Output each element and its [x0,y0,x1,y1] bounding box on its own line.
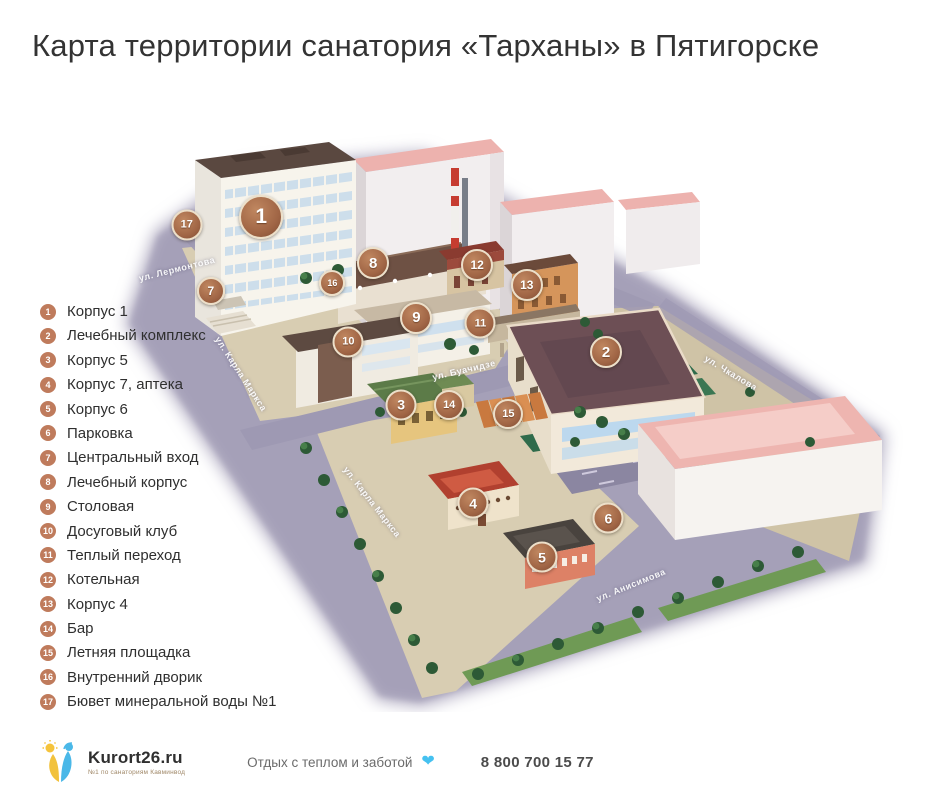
legend-item-2: 2Лечебный комплекс [40,327,276,344]
legend-item-13: 13Корпус 4 [40,596,276,613]
legend-item-10: 10Досуговый клуб [40,523,276,540]
legend-badge: 1 [40,304,56,320]
map-marker-1: 1 [239,195,283,239]
map-marker-13: 13 [511,269,543,301]
legend-label: Бар [67,620,94,637]
legend-badge: 2 [40,328,56,344]
legend-label: Летняя площадка [67,644,190,661]
legend: 1Корпус 12Лечебный комплекс3Корпус 54Кор… [40,303,276,718]
legend-item-11: 11Теплый переход [40,547,276,564]
map-marker-14: 14 [434,390,464,420]
legend-badge: 14 [40,621,56,637]
tagline-text: Отдых с теплом и заботой [247,755,412,770]
map-marker-4: 4 [458,488,489,519]
legend-badge: 13 [40,596,56,612]
brand-subtitle: №1 по санаториям Кавминвод [88,769,185,776]
kurort26-logo[interactable]: Kurort26.ru №1 по санаториям Кавминвод [40,740,185,784]
legend-badge: 7 [40,450,56,466]
legend-item-3: 3Корпус 5 [40,352,276,369]
legend-badge: 9 [40,499,56,515]
map-marker-12: 12 [461,249,493,281]
footer: Kurort26.ru №1 по санаториям Кавминвод О… [40,740,594,784]
map-marker-9: 9 [400,302,432,334]
legend-label: Корпус 6 [67,401,128,418]
map-marker-16: 16 [319,270,345,296]
legend-badge: 8 [40,474,56,490]
legend-item-17: 17Бювет минеральной воды №1 [40,693,276,710]
legend-badge: 4 [40,377,56,393]
legend-label: Корпус 5 [67,352,128,369]
legend-item-6: 6Парковка [40,425,276,442]
legend-item-12: 12Котельная [40,571,276,588]
legend-item-14: 14Бар [40,620,276,637]
map-marker-15: 15 [493,399,523,429]
map-marker-3: 3 [386,389,417,420]
legend-badge: 10 [40,523,56,539]
legend-item-8: 8Лечебный корпус [40,474,276,491]
map-marker-6: 6 [593,503,624,534]
legend-label: Бювет минеральной воды №1 [67,693,276,710]
legend-badge: 5 [40,401,56,417]
legend-label: Корпус 4 [67,596,128,613]
map-marker-11: 11 [465,308,496,339]
legend-item-5: 5Корпус 6 [40,401,276,418]
map-marker-8: 8 [357,247,389,279]
legend-badge: 17 [40,694,56,710]
legend-label: Досуговый клуб [67,523,177,540]
legend-badge: 12 [40,572,56,588]
legend-label: Центральный вход [67,449,199,466]
legend-label: Лечебный корпус [67,474,187,491]
legend-label: Теплый переход [67,547,181,564]
legend-label: Котельная [67,571,140,588]
legend-item-9: 9Столовая [40,498,276,515]
page-title: Карта территории санатория «Тарханы» в П… [32,28,912,64]
map-marker-10: 10 [333,326,364,357]
legend-badge: 3 [40,352,56,368]
map-marker-17: 17 [171,209,202,240]
legend-label: Лечебный комплекс [67,327,206,344]
legend-badge: 16 [40,669,56,685]
legend-badge: 6 [40,425,56,441]
legend-label: Корпус 7, аптека [67,376,183,393]
map-marker-2: 2 [590,336,622,368]
brand-name: Kurort26.ru [88,748,185,768]
legend-item-7: 7Центральный вход [40,449,276,466]
legend-label: Столовая [67,498,134,515]
phone-number[interactable]: 8 800 700 15 77 [481,754,594,771]
legend-badge: 11 [40,547,56,563]
kurort26-logo-icon [40,740,80,784]
legend-badge: 15 [40,645,56,661]
legend-item-1: 1Корпус 1 [40,303,276,320]
map-marker-7: 7 [197,277,225,305]
legend-label: Парковка [67,425,133,442]
legend-label: Корпус 1 [67,303,128,320]
legend-item-15: 15Летняя площадка [40,644,276,661]
logo-text: Kurort26.ru №1 по санаториям Кавминвод [88,748,185,776]
legend-label: Внутренний дворик [67,669,202,686]
legend-item-4: 4Корпус 7, аптека [40,376,276,393]
legend-item-16: 16Внутренний дворик [40,669,276,686]
map-marker-5: 5 [527,542,558,573]
heart-icon: ❤ [421,754,434,770]
tagline: Отдых с теплом и заботой ❤ [247,754,435,770]
